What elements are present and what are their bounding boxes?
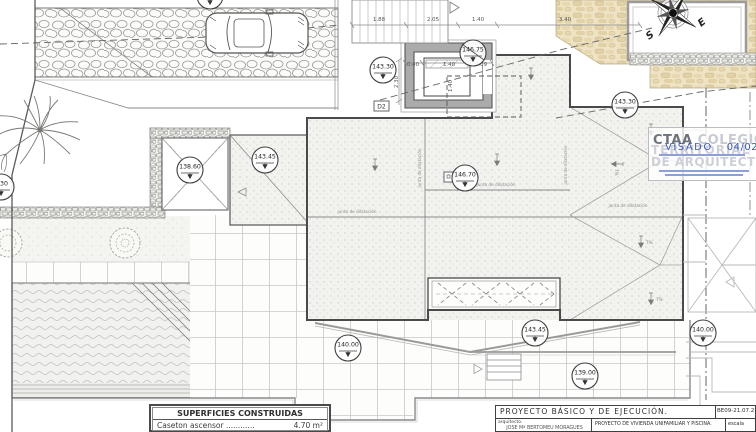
- slope-percent: 7%: [656, 297, 663, 302]
- dimension-text: 1.88: [373, 17, 386, 23]
- elevation-marker: 140.00: [690, 320, 716, 346]
- stamp-smalltext-line: [659, 170, 749, 172]
- slope-percent: 7%: [646, 240, 653, 245]
- junta-label: junta de dilatación: [475, 182, 515, 187]
- elevation-marker: 140.00: [335, 335, 361, 361]
- scale-label: escala: [726, 419, 755, 432]
- dimension-text: 1.40: [448, 79, 454, 92]
- stamp-visado-label: VISADO: [665, 142, 713, 153]
- stone-border-band: [630, 53, 756, 65]
- elevation-marker: 143.45: [522, 320, 548, 346]
- junta-label: junta de dilatación: [607, 203, 647, 208]
- dimension-text: 2.30: [394, 75, 400, 88]
- junta-label: junta de dilatación: [336, 209, 376, 214]
- junta-label: junta de dilatación: [563, 145, 568, 185]
- stamp-visado-date: 04/02/22: [727, 142, 756, 153]
- swimming-pool: [12, 283, 192, 397]
- elevation-value: 143.30: [614, 99, 636, 106]
- elevation-value: 3.30: [0, 181, 8, 188]
- architect-label: arquitecto.: [498, 420, 591, 425]
- roof-plan-sheet: S E 1.882.051.403.400.401.400.092.301.40…: [0, 0, 756, 432]
- slope-percent: 7%: [614, 169, 619, 176]
- dimension-text: 1.40: [443, 62, 456, 68]
- superficies-row-value: 4.70 m²: [294, 421, 323, 430]
- bush: [110, 228, 140, 258]
- elevation-marker: 143.30: [612, 92, 638, 118]
- elevation-value: 140.00: [692, 327, 714, 334]
- stamp-smalltext-line: [665, 174, 743, 176]
- title-block: PROYECTO BÁSICO Y DE EJECUCIÓN. BE09-21.…: [495, 405, 756, 432]
- pool-side-tiles: [12, 262, 190, 283]
- superficies-title: SUPERFICIES CONSTRUIDAS: [153, 408, 327, 420]
- stairs-top: [352, 0, 459, 43]
- elevation-value: 143.45: [254, 154, 276, 161]
- car-top-view: [206, 10, 308, 56]
- pergola-louvers: [428, 278, 560, 310]
- site-plan-svg: S E 1.882.051.403.400.401.400.092.301.40…: [0, 0, 756, 432]
- superficies-row-label: Caseton ascensor ............: [157, 421, 255, 430]
- elevation-value: 143.30: [372, 64, 394, 71]
- elevation-value: 138.60: [179, 164, 201, 171]
- elevation-marker: 146.70: [452, 165, 478, 191]
- title-block-description: PROYECTO DE VIVIENDA UNIFAMILIAR Y PISCI…: [592, 419, 726, 432]
- palm-tree: [0, 96, 80, 172]
- detail-label: D2: [377, 104, 386, 111]
- superficies-table: SUPERFICIES CONSTRUIDAS Caseton ascensor…: [149, 404, 331, 432]
- garden-strip: [0, 216, 190, 262]
- dimension-text: 1.40: [472, 17, 485, 23]
- dimension-text: 0.40: [407, 62, 420, 68]
- title-block-code: BE09-21.07.21: [715, 406, 755, 418]
- architect-name: JOSE Mª BERTOMEU MORAGUES: [498, 426, 591, 431]
- visado-stamp: CTAA COLEGIO TERRITORIAL VISADO04/02/22 …: [648, 127, 756, 181]
- junta-label: junta de dilatación: [417, 148, 422, 188]
- dimension-text: 3.40: [559, 17, 572, 23]
- elevation-value: 146.70: [454, 172, 476, 179]
- elevation-value: 143.45: [524, 327, 546, 334]
- detail-marker: D2: [374, 101, 389, 111]
- elevation-marker: 146.75: [460, 40, 486, 66]
- elevation-marker: 143.30: [370, 57, 396, 83]
- title-block-project: PROYECTO BÁSICO Y DE EJECUCIÓN.: [496, 406, 715, 418]
- elevation-value: 140.00: [337, 342, 359, 349]
- stamp-arquitectos: DE ARQUITECTOS: [651, 156, 756, 168]
- elevation-marker: 143.45: [252, 147, 278, 173]
- dimension-text: 2.05: [427, 17, 439, 23]
- elevation-marker: 138.60: [177, 157, 203, 183]
- elevation-marker: 139.00: [572, 363, 598, 389]
- elevation-value: 139.00: [574, 370, 596, 377]
